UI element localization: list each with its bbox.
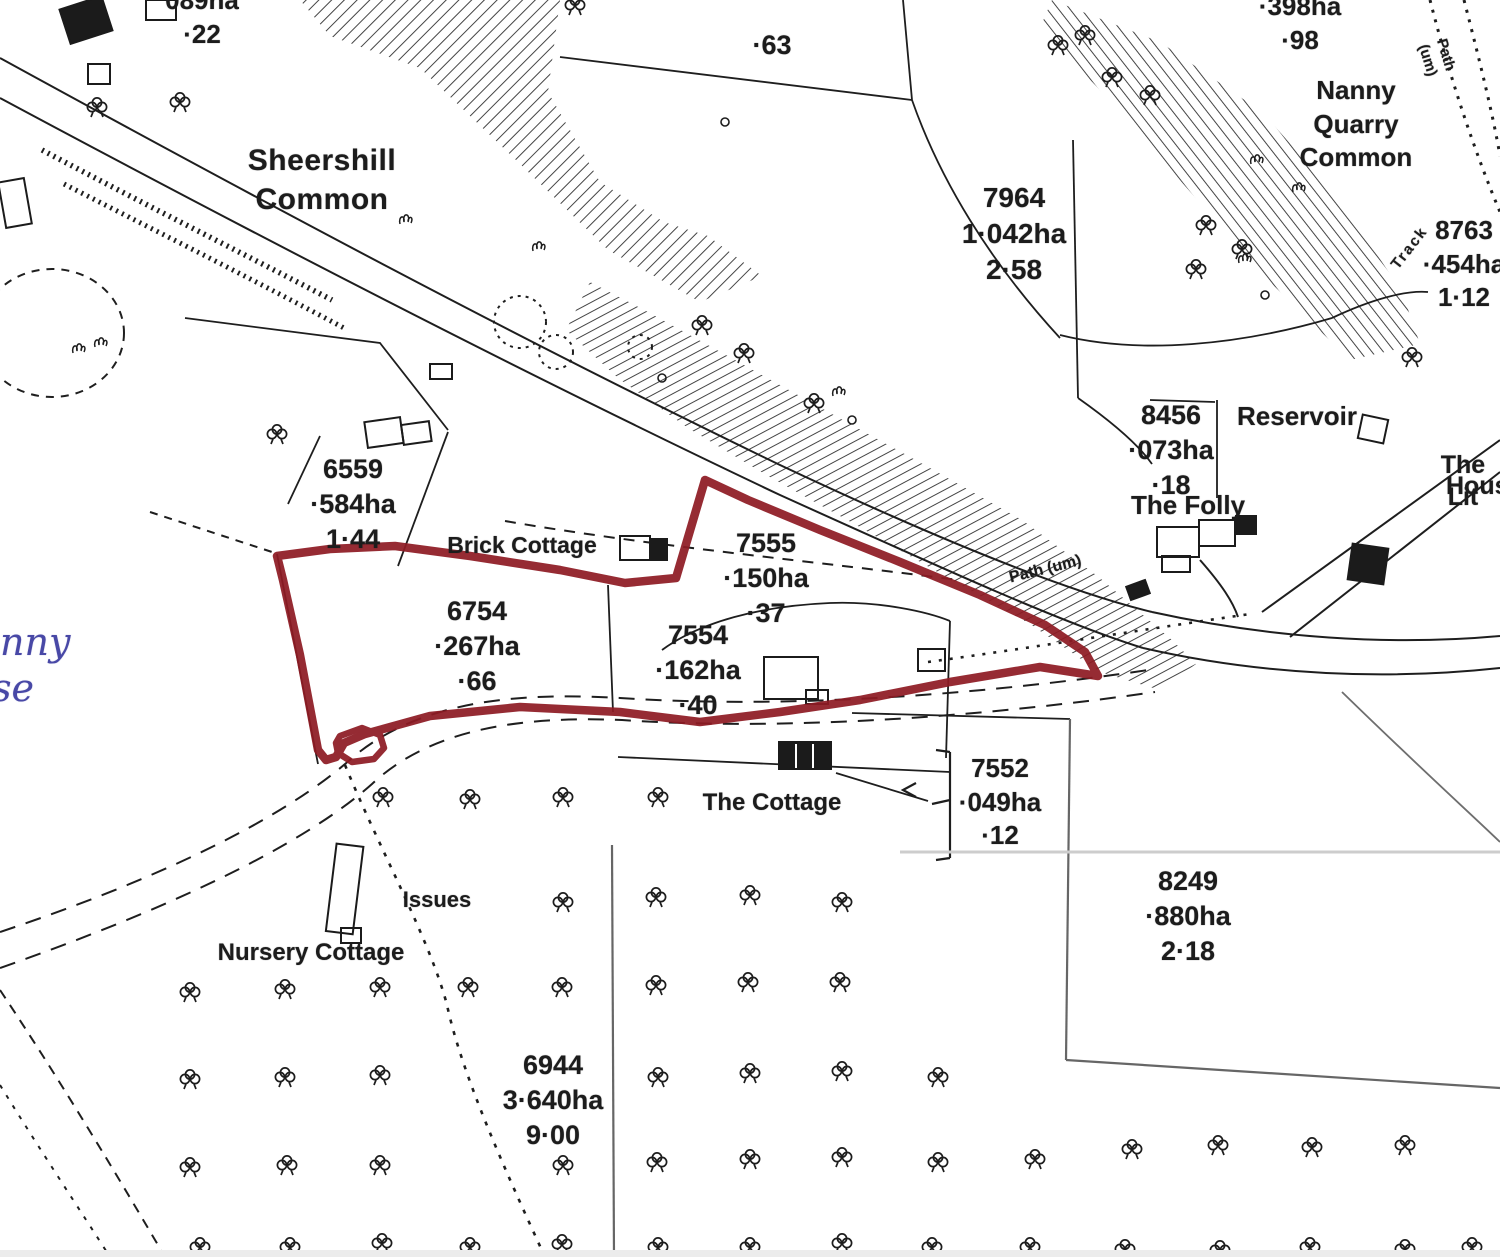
tree-icon — [370, 1066, 389, 1085]
scanned-map: Sheershill CommonNanny Quarry CommonBric… — [0, 0, 1500, 1257]
hachure-slopes — [300, 0, 1420, 690]
rough-pasture-icon — [533, 242, 545, 251]
tree-icon — [180, 983, 199, 1002]
tree-icon — [460, 790, 479, 809]
tree-icon — [740, 1150, 759, 1169]
tree-icon — [565, 0, 584, 15]
tree-icon — [740, 886, 759, 905]
tree-icon — [648, 788, 667, 807]
tree-icon — [647, 1153, 666, 1172]
small-ring-icon — [1261, 291, 1269, 299]
tree-icon — [1402, 348, 1421, 367]
tree-icon — [740, 1064, 759, 1083]
rough-pasture-icon — [73, 344, 85, 353]
tree-icon — [553, 893, 572, 912]
rough-pasture-icon — [95, 338, 107, 347]
tree-icon — [646, 976, 665, 995]
tree-icon — [275, 980, 294, 999]
tree-icon — [180, 1158, 199, 1177]
tree-icon — [1196, 216, 1215, 235]
tree-icon — [928, 1153, 947, 1172]
tree-icon — [267, 425, 286, 444]
tree-icon — [734, 344, 753, 363]
tree-icon — [928, 1068, 947, 1087]
tree-icon — [552, 978, 571, 997]
tree-icon — [370, 1156, 389, 1175]
tree-icon — [1302, 1138, 1321, 1157]
tree-icon — [170, 93, 189, 112]
tree-icon — [1025, 1150, 1044, 1169]
tree-icon — [1186, 260, 1205, 279]
tree-icon — [458, 978, 477, 997]
tree-icon — [275, 1068, 294, 1087]
tree-icon — [1395, 1136, 1414, 1155]
tree-icon — [373, 788, 392, 807]
tree-icon — [646, 888, 665, 907]
tree-icon — [648, 1068, 667, 1087]
small-ring-icon — [848, 416, 856, 424]
rough-pasture-icon — [833, 387, 845, 396]
tree-icon — [738, 973, 757, 992]
rough-pasture-icon — [400, 215, 412, 224]
tree-icon — [832, 893, 851, 912]
tree-icon — [1122, 1140, 1141, 1159]
tree-icon — [1208, 1136, 1227, 1155]
tree-icon — [832, 1148, 851, 1167]
tree-icon — [692, 316, 711, 335]
tree-icon — [553, 788, 572, 807]
map-linework — [0, 0, 1500, 1257]
scan-edge — [0, 1250, 1500, 1257]
tree-icon — [370, 978, 389, 997]
tree-icon — [830, 973, 849, 992]
tree-icon — [277, 1156, 296, 1175]
tree-icon — [832, 1062, 851, 1081]
tree-icon — [553, 1156, 572, 1175]
small-ring-icon — [721, 118, 729, 126]
tree-icon — [180, 1070, 199, 1089]
